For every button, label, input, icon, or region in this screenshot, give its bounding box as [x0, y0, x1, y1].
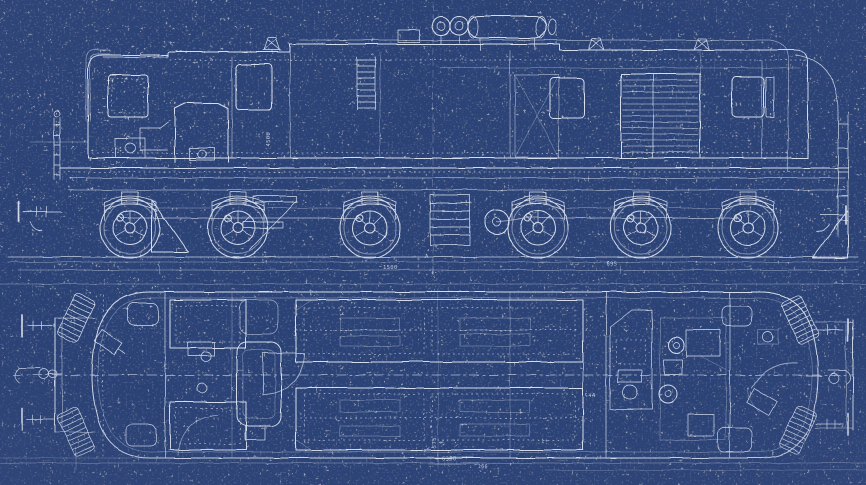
- blueprint-image: 1500 A 695 4500: [0, 0, 866, 485]
- blueprint-canvas: 1500 A 695 4500: [0, 0, 866, 485]
- vignette-overlay: [0, 0, 866, 485]
